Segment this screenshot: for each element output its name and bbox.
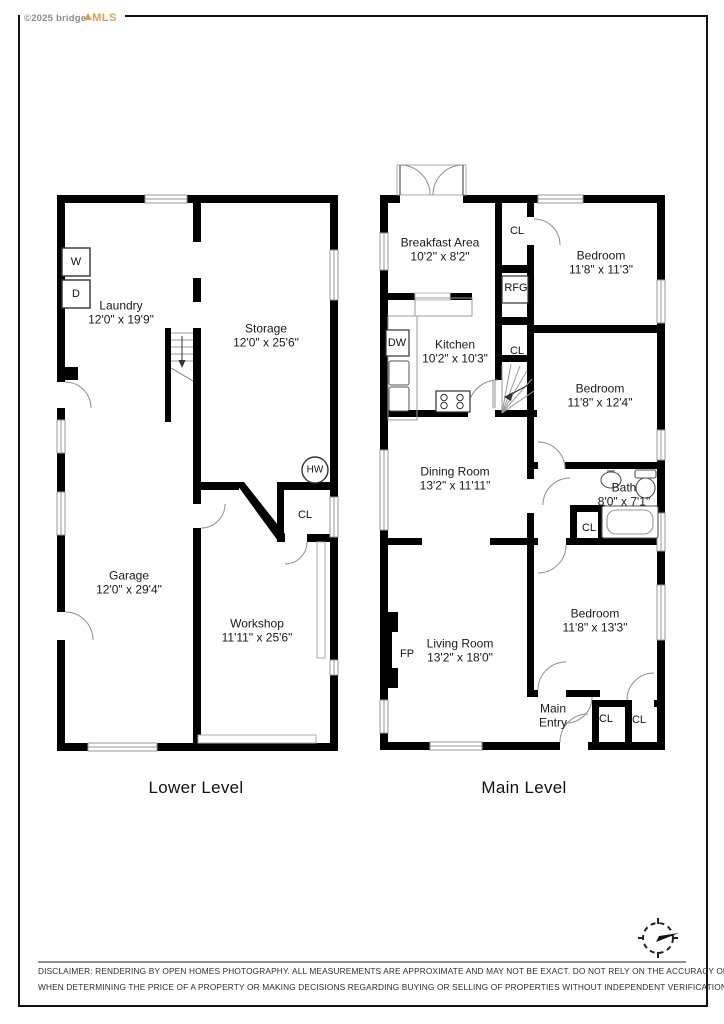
toilet-icon xyxy=(635,470,656,478)
entry-closet-door-arc-icon xyxy=(627,673,654,700)
closet-label-entry-1: CL xyxy=(599,713,613,725)
bedroom1-door-arc-icon xyxy=(534,219,560,245)
room-label-bedroom3: Bedroom 11'8" x 13'3" xyxy=(563,608,628,635)
room-label-breakfast: Breakfast Area 10'2" x 8'2" xyxy=(400,237,480,264)
french-doors xyxy=(397,165,466,203)
room-label-workshop: Workshop 11'11" x 25'6" xyxy=(222,618,293,645)
closet-label-entry-2: CL xyxy=(632,714,646,726)
lower-level-plan xyxy=(57,195,338,751)
watermark-copyright: ©2025 bridge xyxy=(24,13,86,24)
room-label-bath: Bath 8'0" x 7'1" xyxy=(598,482,650,509)
compass-icon xyxy=(632,912,684,964)
disclaimer-line-2: WHEN DETERMINING THE PRICE OF A PROPERTY… xyxy=(38,982,724,992)
closet-label-mid: CL xyxy=(510,345,524,357)
workshop-side-window xyxy=(317,542,325,658)
fireplace-label: FP xyxy=(400,648,414,660)
closet-label-bath: CL xyxy=(582,522,596,534)
washer-label: W xyxy=(71,256,81,268)
floor-plan-page: ©2025 bridgeMLS xyxy=(0,0,724,1024)
stove-icon xyxy=(436,391,470,412)
refrigerator-label: RFG xyxy=(504,282,527,294)
laundry-door-arc-icon xyxy=(65,382,91,408)
bath-door-arc-icon xyxy=(543,478,570,505)
stairs-down-arrow-icon xyxy=(179,360,186,368)
room-label-dining: Dining Room 13'2" x 11'11" xyxy=(420,466,491,493)
room-label-living: Living Room 13'2" x 18'0" xyxy=(427,638,494,665)
bedroom3-door-arc-icon xyxy=(538,545,566,573)
level-title-main: Main Level xyxy=(481,778,566,798)
room-label-main-entry: Main Entry xyxy=(530,703,576,730)
kitchen-sink-icon xyxy=(389,361,409,385)
disclaimer-line-1: DISCLAIMER: RENDERING BY OPEN HOMES PHOT… xyxy=(38,966,724,976)
workshop-door-arc-icon xyxy=(201,504,225,528)
kitchen-door-leaf xyxy=(492,381,496,408)
bridgemls-logo-icon xyxy=(84,13,92,20)
room-label-bedroom2: Bedroom 11'8" x 12'4" xyxy=(568,383,633,410)
closet-label-hall: CL xyxy=(510,225,524,237)
lower-stairs xyxy=(171,333,193,381)
bedroom3-entry-door-arc-icon xyxy=(538,662,566,690)
room-label-storage: Storage 12'0" x 25'6" xyxy=(233,323,299,350)
watermark-brand: MLS xyxy=(92,12,117,24)
watermark: ©2025 bridgeMLS xyxy=(20,6,125,28)
room-label-bedroom1: Bedroom 11'8" x 11'3" xyxy=(569,250,633,277)
dishwasher-label: DW xyxy=(388,337,406,349)
dryer-label: D xyxy=(72,288,80,300)
lower-doors xyxy=(57,382,307,640)
closet-label-lower: CL xyxy=(298,509,312,521)
garage-door-arc-icon xyxy=(65,612,93,640)
water-heater-label: HW xyxy=(307,465,324,476)
workshop-slider-window xyxy=(198,735,316,743)
bedroom2-door-arc-icon xyxy=(538,442,565,469)
footer-divider xyxy=(38,961,686,963)
room-label-laundry: Laundry 12'0" x 19'9" xyxy=(88,300,154,327)
level-title-lower: Lower Level xyxy=(149,778,244,798)
closet-door-arc-icon xyxy=(285,542,307,564)
room-label-kitchen: Kitchen 10'2" x 10'3" xyxy=(422,339,488,366)
counter-peninsula xyxy=(415,298,472,316)
room-label-garage: Garage 12'0" x 29'4" xyxy=(96,570,162,597)
